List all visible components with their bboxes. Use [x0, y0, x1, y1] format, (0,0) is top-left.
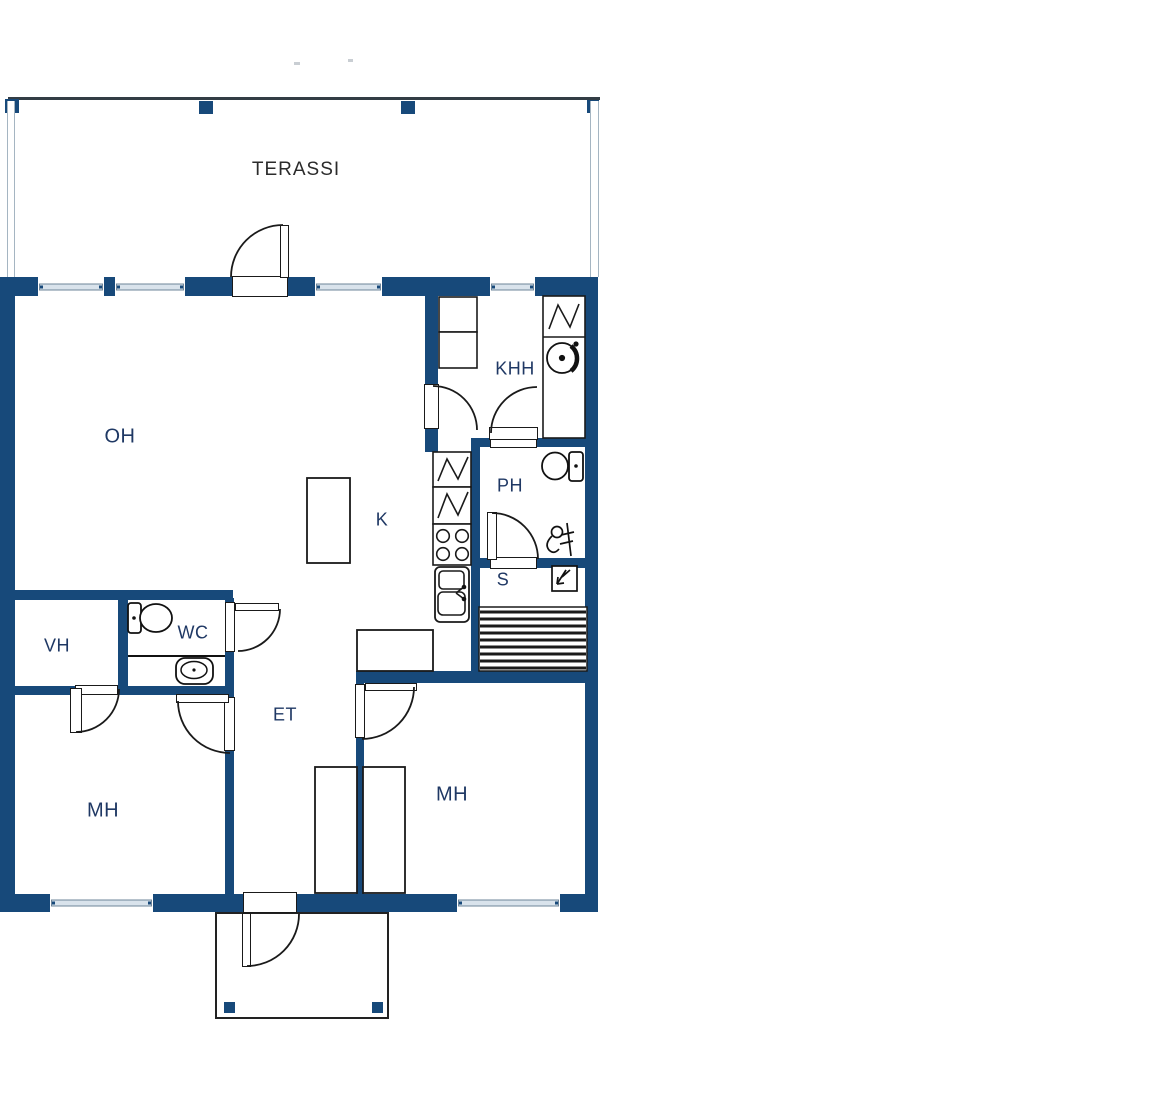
terrace-post-icon — [199, 101, 213, 114]
kitchen-counter — [357, 630, 433, 671]
mhright-door-threshold — [365, 683, 417, 691]
room-label-s: S — [497, 570, 510, 591]
room-label-k: K — [376, 510, 389, 531]
khh-door-opening — [424, 384, 439, 429]
wc-door-arc — [238, 609, 280, 651]
terrace-door-leaf — [280, 225, 289, 278]
vh-door-leaf — [70, 688, 82, 733]
wall-wc-east-lower — [225, 750, 234, 894]
window — [50, 894, 153, 912]
mhright-door-arc — [362, 687, 414, 739]
room-label-wc: WC — [178, 623, 209, 644]
entrance-door-opening — [243, 892, 297, 913]
ph-s-door-leaf — [487, 512, 497, 560]
room-label-khh: KHH — [495, 359, 535, 380]
vh-door-arc — [76, 689, 119, 732]
ph-s-door-arc — [492, 513, 538, 559]
floor-plan: TERASSI OH KHH PH K S VH WC ET MH MH — [0, 0, 1152, 1112]
terrace-post-icon — [401, 101, 415, 114]
wc-door-leaf — [235, 603, 279, 611]
kitchen-sink-icon — [435, 567, 469, 622]
ph-s-door-opening — [490, 557, 537, 569]
fixtures-layer — [0, 0, 1152, 1112]
window — [457, 894, 560, 912]
wall-vh-wc — [118, 598, 128, 687]
room-label-mh-left: MH — [87, 800, 119, 823]
terrace-front-edge — [8, 97, 600, 100]
wc-door-opening — [225, 602, 235, 652]
window — [115, 277, 185, 296]
mhright-door-leaf — [355, 684, 365, 738]
window — [38, 277, 104, 296]
washing-machine-icon — [547, 341, 579, 373]
room-label-et: ET — [273, 705, 297, 726]
porch-post-icon — [372, 1002, 383, 1013]
wc-toilet-icon — [128, 603, 172, 633]
cooktop-icon — [433, 524, 471, 565]
sauna-benches — [479, 607, 587, 671]
mhleft-door-opening — [224, 697, 235, 751]
wall-right — [585, 277, 598, 912]
terrace-rail-right — [590, 101, 599, 277]
porch-post-icon — [224, 1002, 235, 1013]
khh-ph-door-leaf — [489, 427, 538, 440]
terrace-door-arc — [231, 225, 283, 277]
cold-appliance-icon — [433, 452, 471, 524]
terrace-door-opening — [232, 276, 288, 297]
window — [490, 277, 535, 296]
khh-door-arc — [433, 386, 477, 430]
room-label-mh-right: MH — [436, 784, 468, 807]
kitchen-island — [307, 478, 350, 563]
room-label-terassi: TERASSI — [252, 159, 340, 181]
khh-cabinet-icon — [439, 297, 477, 368]
drying-cabinet-icon — [543, 296, 585, 438]
wc-sink-icon — [128, 656, 225, 684]
entrance-door-leaf — [242, 913, 251, 967]
sauna-heater-icon — [552, 566, 577, 591]
print-speck — [294, 62, 300, 65]
room-label-vh: VH — [44, 636, 70, 657]
ph-toilet-icon — [542, 452, 583, 481]
print-speck — [348, 59, 353, 62]
mhleft-door-arc — [178, 701, 230, 753]
room-label-oh: OH — [105, 426, 136, 449]
room-label-ph: PH — [497, 476, 523, 497]
shower-icon — [547, 523, 574, 556]
mhleft-door-leaf — [176, 694, 229, 703]
window — [315, 277, 382, 296]
wall-south-inner — [356, 671, 598, 683]
terrace-rail-left — [7, 101, 15, 277]
